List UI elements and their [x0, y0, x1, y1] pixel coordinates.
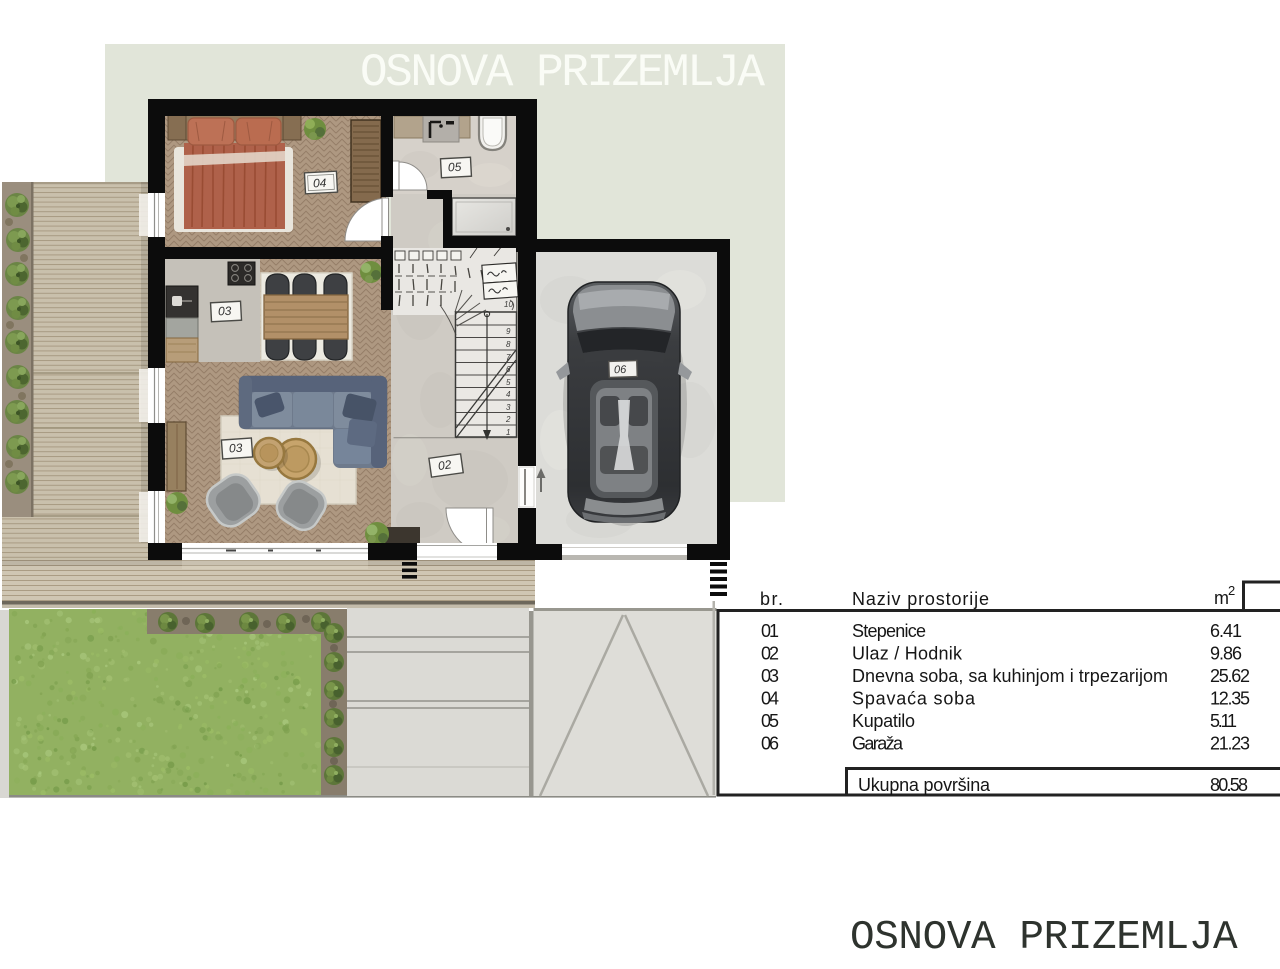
- svg-text:9.86: 9.86: [1210, 644, 1242, 664]
- svg-text:03: 03: [229, 441, 244, 456]
- svg-text:12.35: 12.35: [1210, 689, 1250, 709]
- svg-text:01: 01: [761, 621, 779, 641]
- svg-text:7: 7: [506, 353, 511, 362]
- svg-text:06: 06: [761, 734, 779, 754]
- svg-text:02: 02: [437, 457, 452, 473]
- svg-text:OSNOVA PRIZEMLJA: OSNOVA PRIZEMLJA: [360, 47, 765, 99]
- svg-text:21.23: 21.23: [1210, 734, 1250, 754]
- svg-text:Dnevna soba, sa kuhinjom i trp: Dnevna soba, sa kuhinjom i trpezarijom: [852, 666, 1168, 686]
- svg-text:br.: br.: [760, 589, 783, 609]
- svg-text:10: 10: [504, 300, 513, 309]
- svg-text:8: 8: [506, 340, 511, 349]
- svg-text:5.11: 5.11: [1210, 711, 1237, 731]
- svg-text:6: 6: [506, 365, 511, 374]
- svg-text:03: 03: [218, 304, 232, 319]
- svg-text:OSNOVA PRIZEMLJA: OSNOVA PRIZEMLJA: [850, 915, 1238, 961]
- svg-text:3: 3: [506, 403, 511, 412]
- svg-text:03: 03: [761, 666, 779, 686]
- svg-text:Kupatilo: Kupatilo: [852, 711, 915, 731]
- svg-text:04: 04: [761, 689, 779, 709]
- svg-text:05: 05: [761, 711, 779, 731]
- svg-text:2: 2: [1228, 583, 1235, 598]
- svg-text:Garaža: Garaža: [852, 734, 904, 754]
- svg-text:Ulaz / Hodnik: Ulaz / Hodnik: [852, 644, 963, 664]
- svg-text:05: 05: [448, 160, 462, 175]
- svg-text:02: 02: [761, 644, 779, 664]
- svg-text:Ukupna površina: Ukupna površina: [858, 775, 991, 795]
- svg-text:80.58: 80.58: [1210, 775, 1248, 795]
- svg-text:9: 9: [506, 327, 511, 336]
- svg-text:2: 2: [505, 415, 511, 424]
- svg-text:m: m: [1214, 588, 1229, 608]
- svg-text:1: 1: [506, 428, 510, 437]
- svg-text:Naziv prostorije: Naziv prostorije: [852, 589, 989, 609]
- svg-text:6.41: 6.41: [1210, 621, 1242, 641]
- svg-text:25.62: 25.62: [1210, 666, 1250, 686]
- svg-text:5: 5: [506, 378, 511, 387]
- svg-text:Stepenice: Stepenice: [852, 621, 926, 641]
- svg-text:06: 06: [614, 364, 628, 376]
- svg-text:04: 04: [313, 176, 327, 191]
- svg-text:Spavaća soba: Spavaća soba: [852, 689, 976, 709]
- svg-text:4: 4: [506, 390, 511, 399]
